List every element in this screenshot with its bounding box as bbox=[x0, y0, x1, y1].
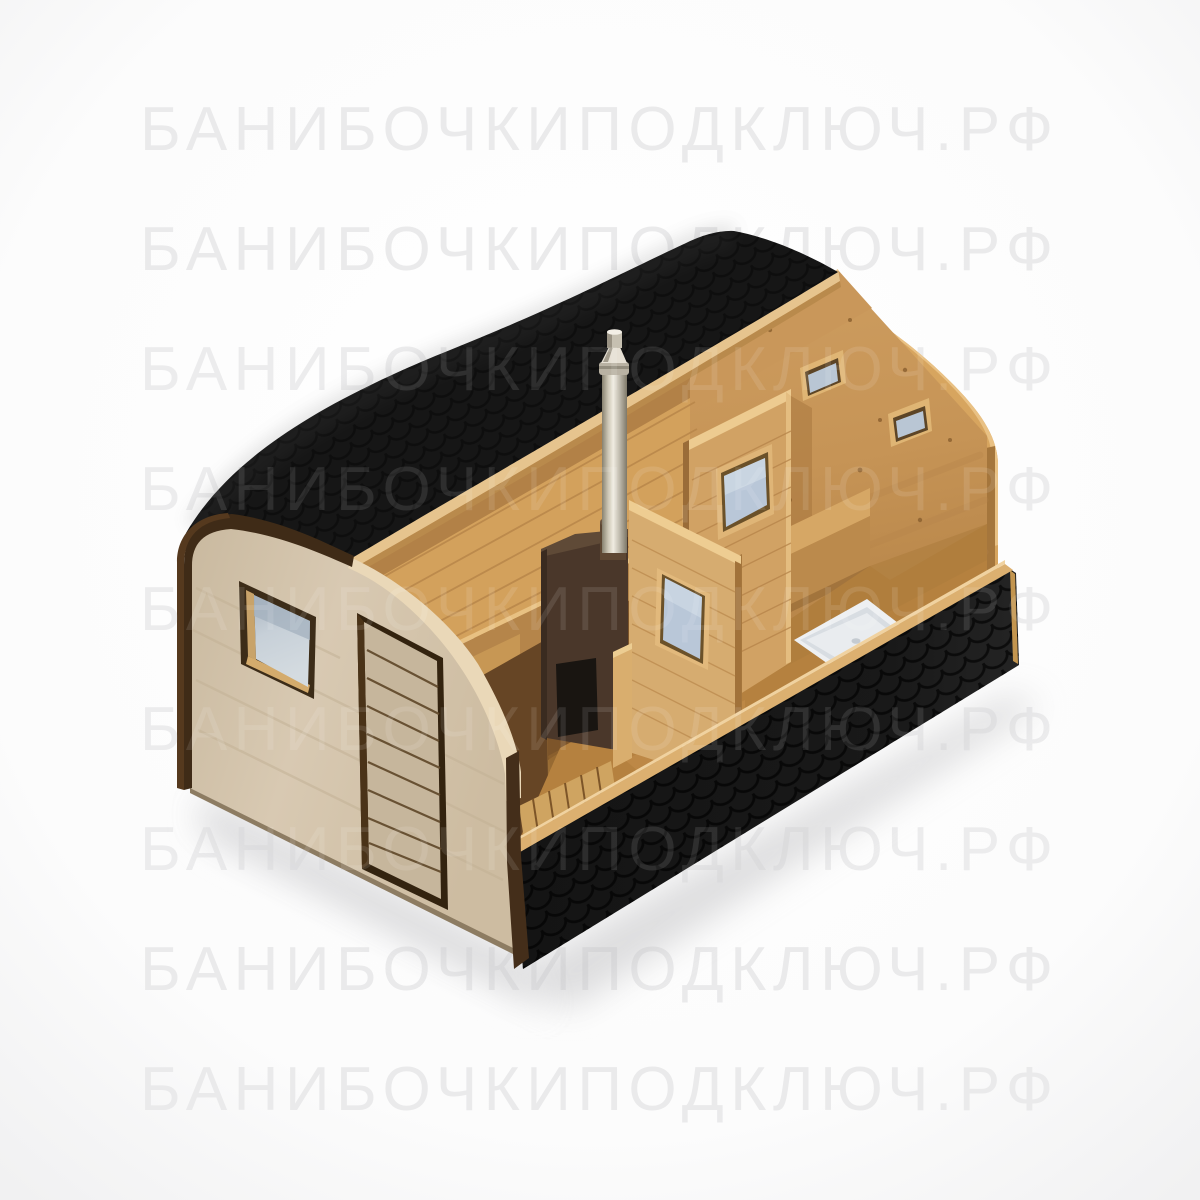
svg-text:БАНИБОЧКИПОДКЛЮЧ.РФ: БАНИБОЧКИПОДКЛЮЧ.РФ bbox=[140, 815, 1060, 884]
svg-text:БАНИБОЧКИПОДКЛЮЧ.РФ: БАНИБОЧКИПОДКЛЮЧ.РФ bbox=[140, 335, 1060, 404]
svg-text:БАНИБОЧКИПОДКЛЮЧ.РФ: БАНИБОЧКИПОДКЛЮЧ.РФ bbox=[140, 455, 1060, 524]
svg-text:БАНИБОЧКИПОДКЛЮЧ.РФ: БАНИБОЧКИПОДКЛЮЧ.РФ bbox=[140, 575, 1060, 644]
svg-text:БАНИБОЧКИПОДКЛЮЧ.РФ: БАНИБОЧКИПОДКЛЮЧ.РФ bbox=[140, 1055, 1060, 1124]
svg-text:БАНИБОЧКИПОДКЛЮЧ.РФ: БАНИБОЧКИПОДКЛЮЧ.РФ bbox=[140, 695, 1060, 764]
svg-text:БАНИБОЧКИПОДКЛЮЧ.РФ: БАНИБОЧКИПОДКЛЮЧ.РФ bbox=[140, 215, 1060, 284]
svg-text:БАНИБОЧКИПОДКЛЮЧ.РФ: БАНИБОЧКИПОДКЛЮЧ.РФ bbox=[140, 95, 1060, 164]
